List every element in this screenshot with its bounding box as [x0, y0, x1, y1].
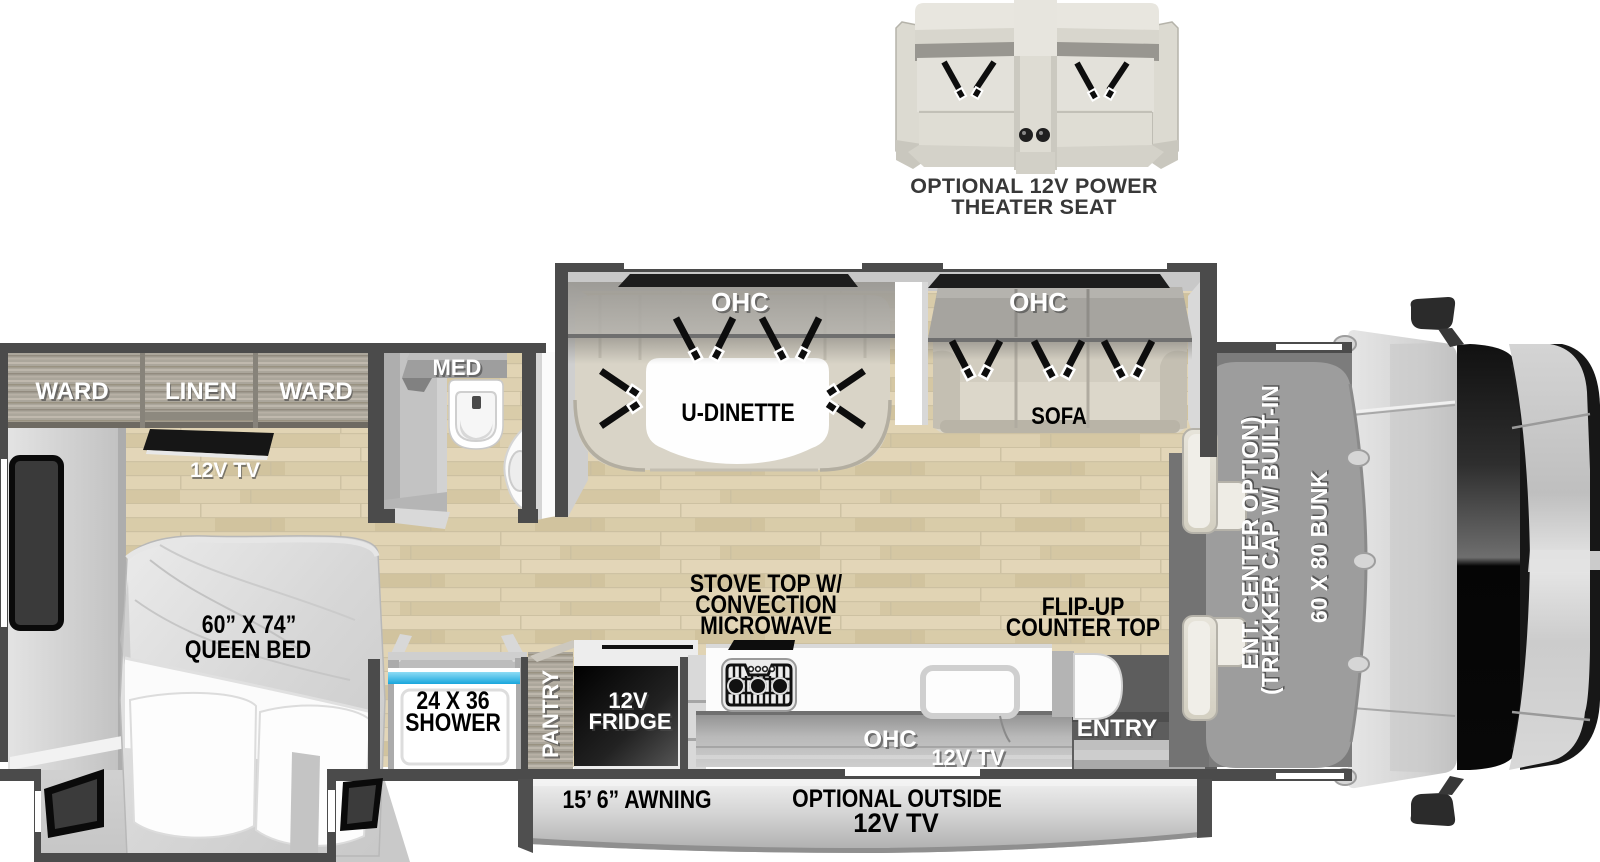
svg-text:60” X 74”: 60” X 74”	[202, 610, 296, 638]
svg-text:U-DINETTE: U-DINETTE	[681, 398, 794, 426]
svg-text:12V TV: 12V TV	[190, 459, 260, 482]
svg-text:OHC: OHC	[711, 287, 769, 317]
svg-text:THEATER SEAT: THEATER SEAT	[951, 195, 1116, 219]
svg-text:OHC: OHC	[863, 726, 916, 753]
svg-text:ENT. CENTER OPTION): ENT. CENTER OPTION)	[1237, 416, 1263, 669]
svg-text:COUNTER TOP: COUNTER TOP	[1006, 613, 1160, 641]
svg-text:WARD: WARD	[35, 378, 108, 405]
svg-text:15’ 6” AWNING: 15’ 6” AWNING	[562, 785, 711, 813]
svg-text:MICROWAVE: MICROWAVE	[700, 611, 832, 639]
svg-text:60 X 80 BUNK: 60 X 80 BUNK	[1306, 471, 1332, 624]
svg-text:12V TV: 12V TV	[853, 807, 939, 838]
svg-text:ENTRY: ENTRY	[1077, 715, 1157, 742]
svg-text:MED: MED	[433, 355, 482, 380]
svg-text:FRIDGE: FRIDGE	[588, 709, 671, 734]
svg-text:SHOWER: SHOWER	[405, 708, 501, 736]
svg-text:QUEEN BED: QUEEN BED	[185, 635, 311, 663]
svg-text:12V TV: 12V TV	[931, 745, 1005, 770]
svg-text:OHC: OHC	[1009, 287, 1067, 317]
svg-text:PANTRY: PANTRY	[538, 670, 563, 758]
svg-text:LINEN: LINEN	[165, 378, 237, 405]
svg-text:SOFA: SOFA	[1031, 402, 1087, 429]
svg-text:WARD: WARD	[279, 378, 352, 405]
